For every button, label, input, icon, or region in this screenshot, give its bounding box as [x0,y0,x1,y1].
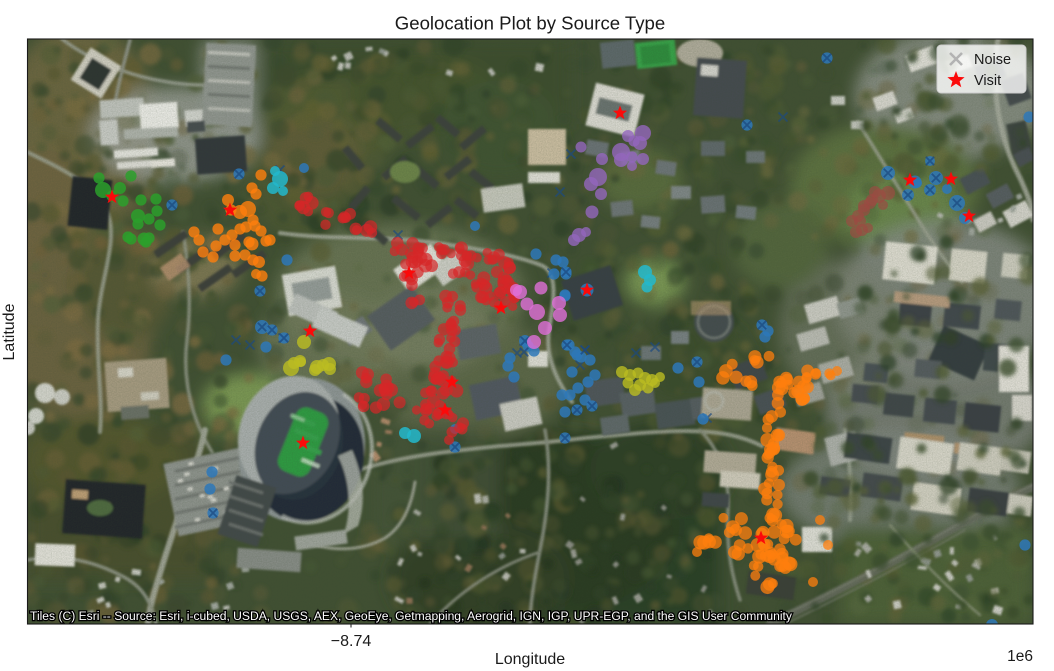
svg-text:Tiles (C) Esri -- Source: Esri: Tiles (C) Esri -- Source: Esri, i-cubed,… [30,609,793,623]
svg-text:Noise: Noise [974,52,1011,68]
svg-text:Latitude: Latitude [1,303,18,360]
svg-text:1e6: 1e6 [1007,648,1033,665]
svg-text:−8.74: −8.74 [331,633,372,650]
svg-text:Longitude: Longitude [495,651,565,668]
svg-text:Visit: Visit [974,73,1001,89]
svg-text:Geolocation Plot by Source Typ: Geolocation Plot by Source Type [395,13,665,34]
